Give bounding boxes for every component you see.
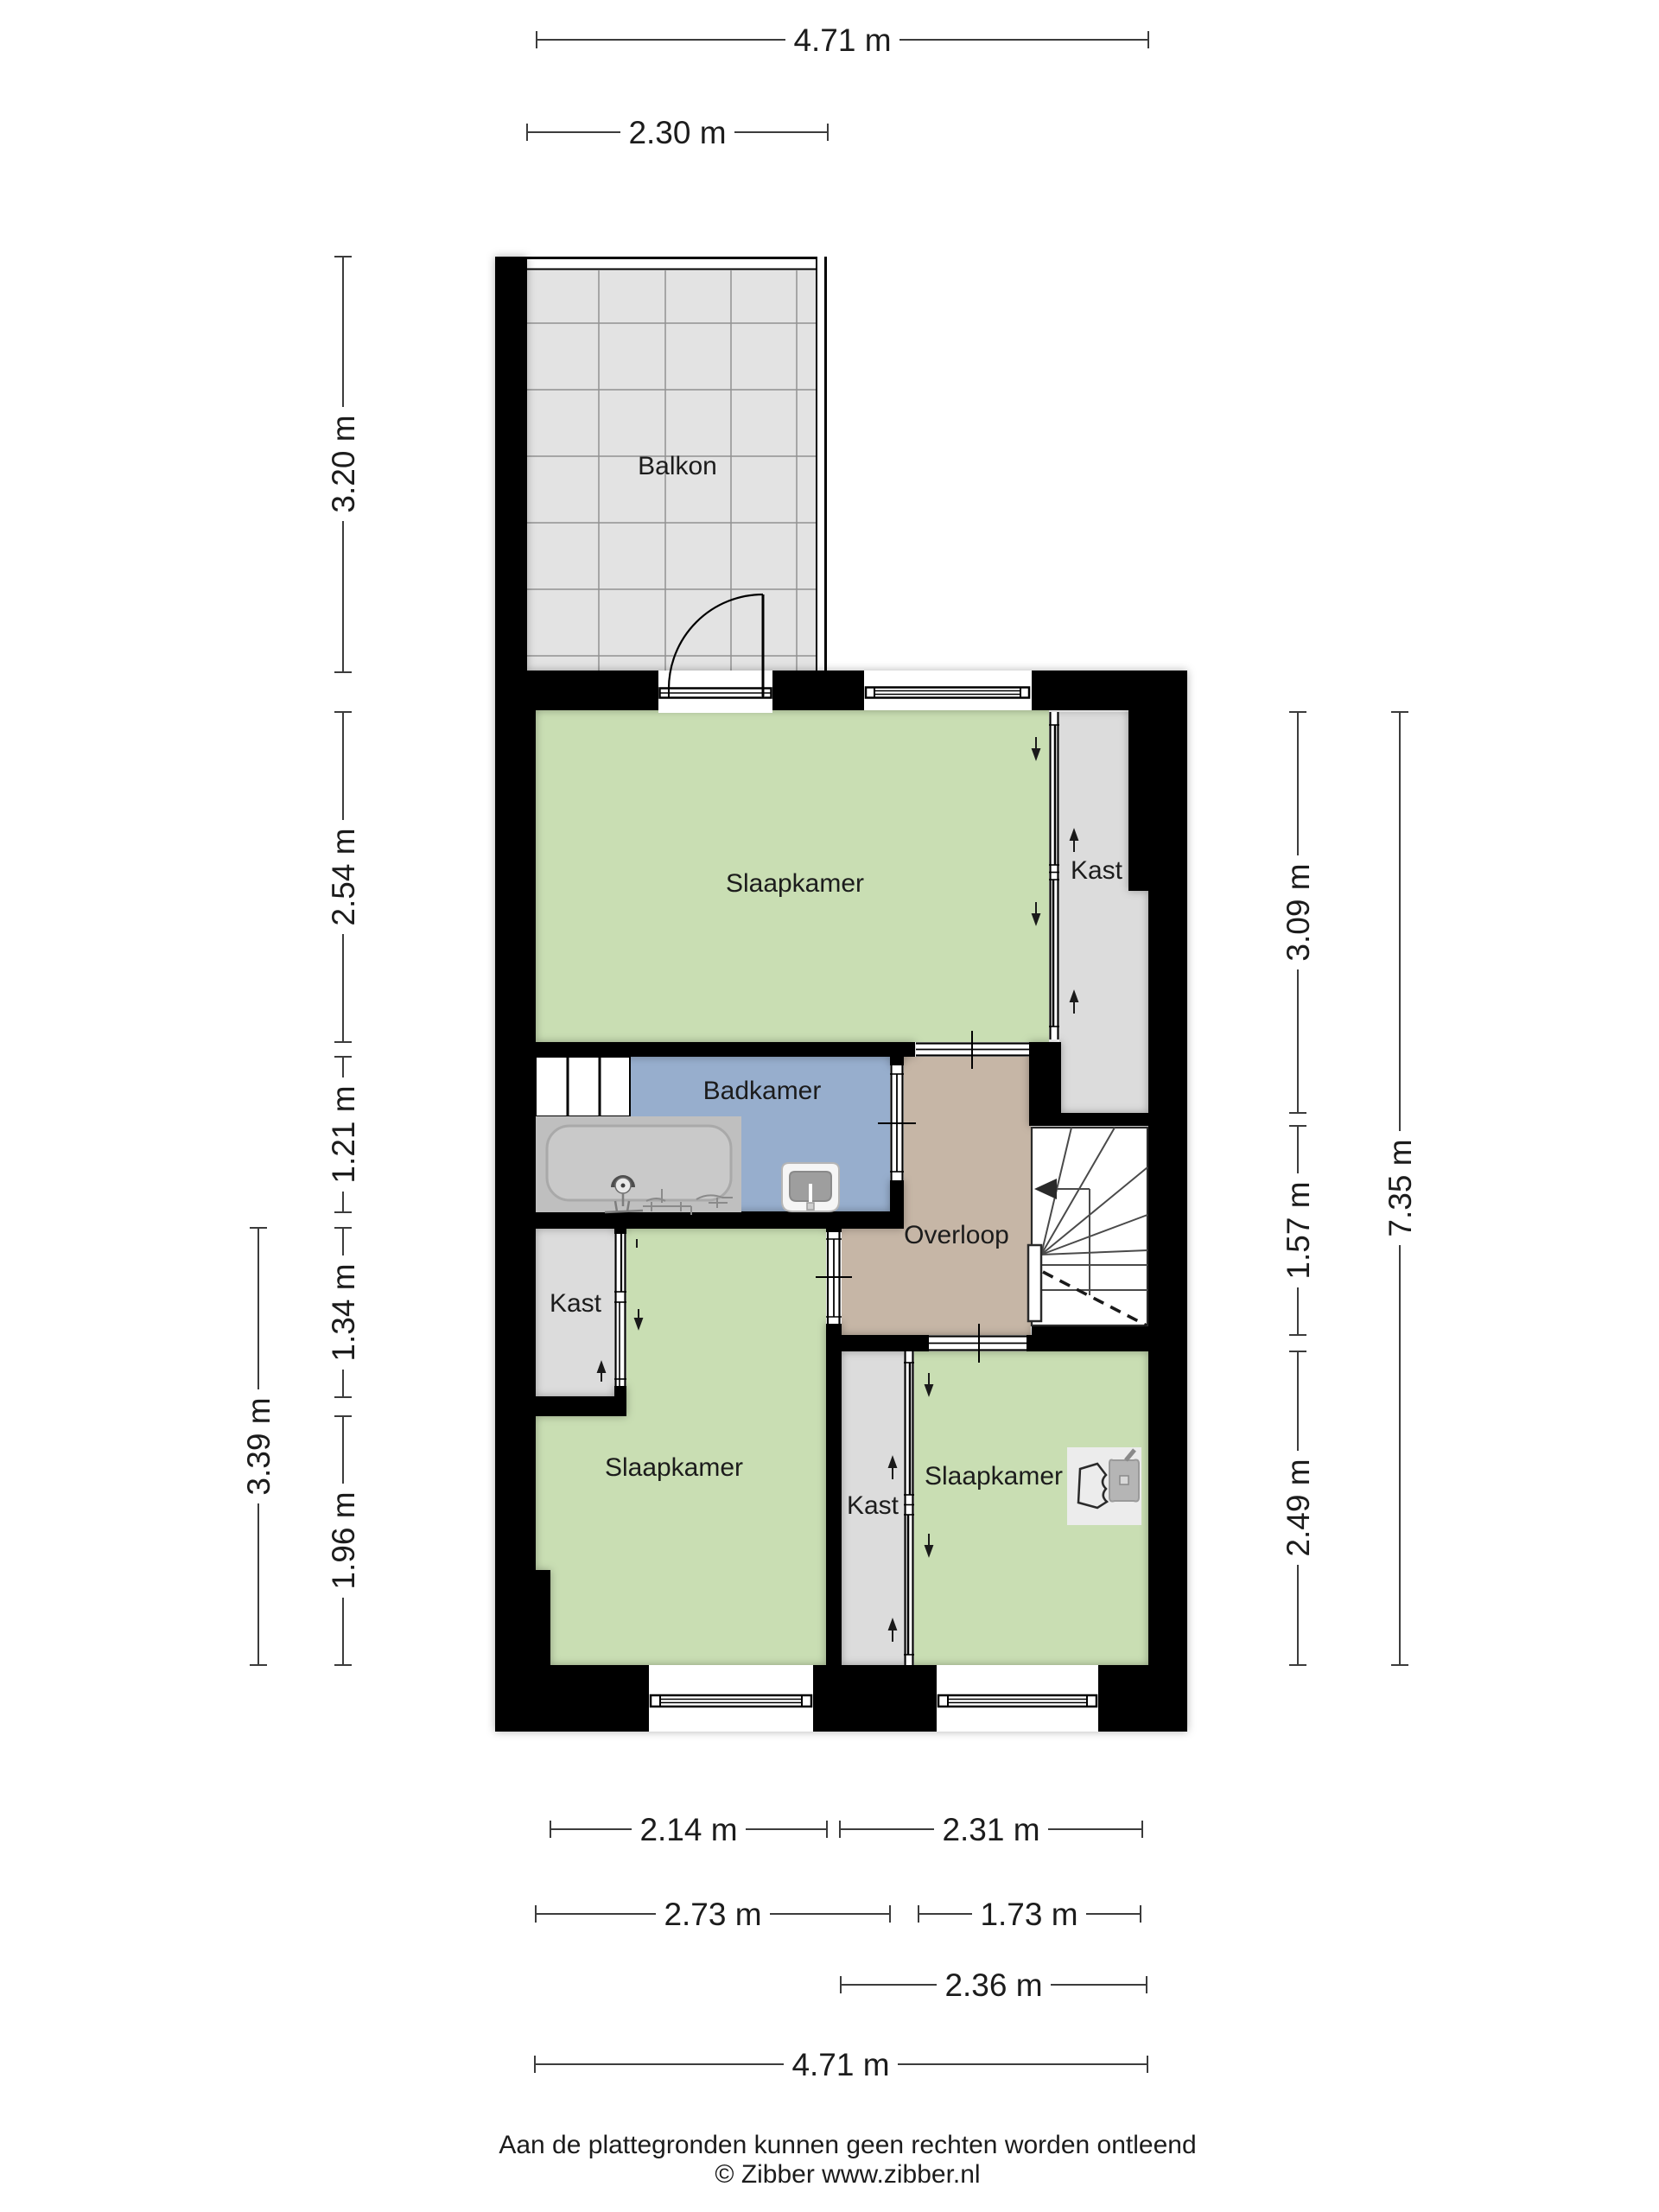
- svg-text:3.39 m: 3.39 m: [241, 1397, 276, 1495]
- svg-text:Badkamer: Badkamer: [703, 1077, 822, 1105]
- svg-text:Overloop: Overloop: [904, 1221, 1009, 1249]
- svg-text:2.31 m: 2.31 m: [942, 1812, 1039, 1847]
- svg-text:4.71 m: 4.71 m: [793, 22, 891, 58]
- svg-text:2.49 m: 2.49 m: [1281, 1459, 1316, 1556]
- svg-text:Slaapkamer: Slaapkamer: [726, 869, 864, 898]
- svg-text:Balkon: Balkon: [638, 452, 717, 480]
- svg-text:2.54 m: 2.54 m: [326, 828, 361, 925]
- svg-text:Aan de plattegronden kunnen ge: Aan de plattegronden kunnen geen rechten…: [499, 2131, 1196, 2159]
- svg-text:4.71 m: 4.71 m: [791, 2047, 889, 2082]
- svg-text:2.30 m: 2.30 m: [628, 115, 726, 150]
- svg-text:2.36 m: 2.36 m: [944, 1967, 1042, 2003]
- svg-text:2.14 m: 2.14 m: [639, 1812, 737, 1847]
- svg-text:3.09 m: 3.09 m: [1281, 863, 1316, 961]
- svg-text:Kast: Kast: [1071, 856, 1123, 885]
- svg-text:1.73 m: 1.73 m: [980, 1897, 1077, 1932]
- svg-text:7.35 m: 7.35 m: [1382, 1139, 1418, 1236]
- svg-text:1.96 m: 1.96 m: [326, 1491, 361, 1589]
- svg-text:1.57 m: 1.57 m: [1281, 1181, 1316, 1279]
- svg-text:Slaapkamer: Slaapkamer: [925, 1462, 1063, 1491]
- svg-text:Slaapkamer: Slaapkamer: [605, 1453, 743, 1482]
- svg-text:1.21 m: 1.21 m: [326, 1085, 361, 1183]
- svg-text:© Zibber www.zibber.nl: © Zibber www.zibber.nl: [715, 2160, 980, 2189]
- svg-text:3.20 m: 3.20 m: [326, 415, 361, 512]
- svg-text:Kast: Kast: [550, 1289, 602, 1318]
- svg-text:1.34 m: 1.34 m: [326, 1263, 361, 1361]
- svg-text:2.73 m: 2.73 m: [664, 1897, 761, 1932]
- svg-text:Kast: Kast: [847, 1491, 899, 1520]
